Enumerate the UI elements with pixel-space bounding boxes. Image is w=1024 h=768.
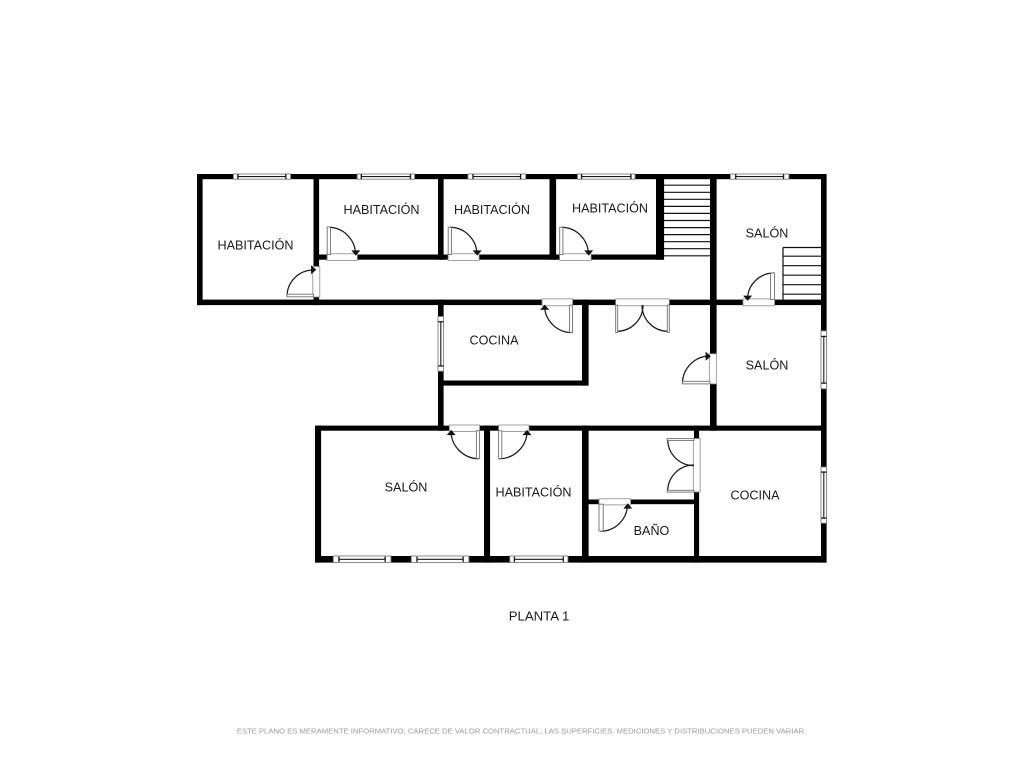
svg-text:HABITACIÓN: HABITACIÓN: [217, 237, 293, 252]
svg-text:HABITACIÓN: HABITACIÓN: [343, 202, 419, 217]
svg-text:ESTE PLANO ES MERAMENTE INFORM: ESTE PLANO ES MERAMENTE INFORMATIVO, CAR…: [237, 726, 807, 735]
svg-text:COCINA: COCINA: [470, 333, 520, 347]
svg-text:SALÓN: SALÓN: [746, 225, 789, 240]
svg-text:SALÓN: SALÓN: [385, 479, 428, 494]
svg-text:HABITACIÓN: HABITACIÓN: [495, 484, 571, 499]
svg-text:PLANTA 1: PLANTA 1: [509, 609, 570, 624]
svg-text:HABITACIÓN: HABITACIÓN: [454, 202, 530, 217]
svg-text:COCINA: COCINA: [731, 488, 781, 502]
svg-text:SALÓN: SALÓN: [746, 357, 789, 372]
svg-text:HABITACIÓN: HABITACIÓN: [572, 201, 648, 216]
svg-text:BAÑO: BAÑO: [634, 524, 670, 538]
